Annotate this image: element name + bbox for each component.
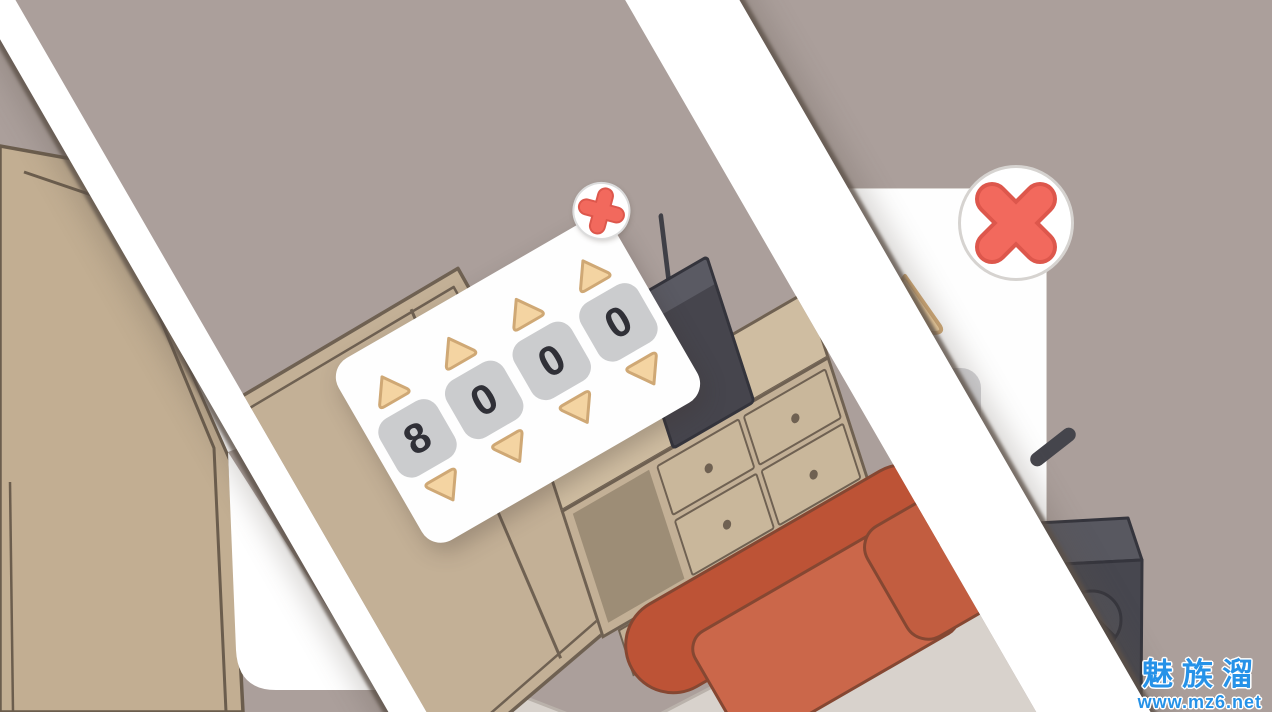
drawer-knob-icon xyxy=(808,468,819,481)
drawer-knob-icon xyxy=(703,462,714,475)
game-screenshot-collage: 8 0 0 0 xyxy=(0,0,1272,712)
close-button-large[interactable] xyxy=(958,165,1074,281)
red-x-close-icon xyxy=(961,168,1071,278)
drawer-knob-icon xyxy=(790,412,801,425)
watermark-url: www.mz6.net xyxy=(1138,692,1262,712)
watermark: 魅族溜 www.mz6.net xyxy=(1138,658,1262,712)
drawer-knob-icon xyxy=(722,518,733,531)
watermark-site-name: 魅族溜 xyxy=(1138,658,1262,692)
